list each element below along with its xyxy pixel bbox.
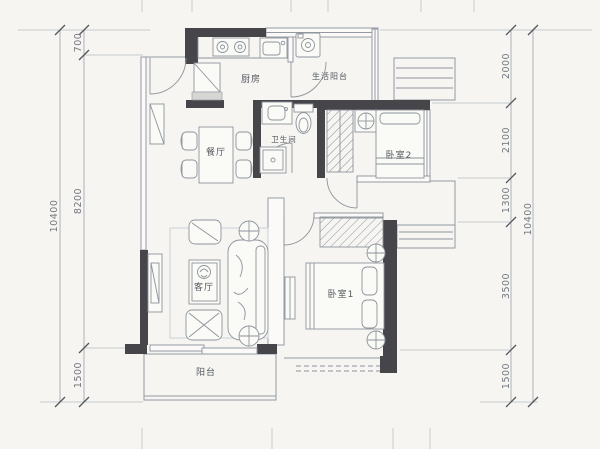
kitchen-sink-icon — [260, 38, 287, 58]
bedroom2-bed-icon — [376, 110, 424, 178]
ac-platform-top — [394, 58, 455, 100]
dim-right-2100: 2100 — [501, 127, 512, 153]
dim-right-3500: 3500 — [501, 273, 512, 299]
living-balcony-area: 生活阳台 — [296, 33, 348, 81]
bedroom2-door — [327, 178, 357, 208]
bathroom-label: 卫生间 — [271, 134, 297, 144]
bedroom1-area: 卧室1 — [285, 217, 385, 349]
dim-right-1300: 1300 — [501, 187, 512, 213]
dining-chair-icon — [236, 160, 252, 178]
dining-chair-icon — [181, 160, 197, 178]
balcony-area: 阳台 — [196, 366, 216, 378]
bottom-extension-ticks — [142, 428, 430, 449]
entry-door-arc — [150, 58, 186, 94]
dining-area: 餐厅 — [150, 104, 252, 183]
living-balcony-label: 生活阳台 — [312, 71, 348, 81]
bedroom1-door — [284, 215, 314, 245]
dim-left-8200: 8200 — [73, 188, 84, 214]
toilet-icon — [294, 104, 313, 134]
living-room-area: 客厅 — [148, 220, 268, 346]
kitchen-label: 厨房 — [241, 73, 261, 85]
kitchen-area: 厨房 — [192, 37, 288, 100]
bedroom1-label: 卧室1 — [328, 288, 355, 300]
floor-plan-canvas: 700 8200 1500 10400 2000 2100 1300 3500 … — [0, 0, 600, 449]
stove-icon — [213, 38, 249, 56]
windows-and-thin-walls — [141, 28, 455, 400]
armchair-icon — [189, 220, 221, 244]
dim-right-total: 10400 — [523, 203, 534, 236]
bedroom2-wardrobe-icon — [327, 110, 353, 172]
left-exterior-wall — [141, 57, 146, 250]
shoe-cabinet-icon — [150, 104, 164, 144]
bathroom-vanity-icon — [262, 102, 292, 124]
side-table-icon — [239, 326, 259, 346]
living-bedroom1-divider — [268, 198, 284, 345]
floor-plan: 700 8200 1500 10400 2000 2100 1300 3500 … — [0, 0, 600, 449]
dresser-icon — [285, 277, 295, 319]
dining-label: 餐厅 — [206, 146, 226, 158]
sofa-icon — [228, 240, 268, 340]
washing-machine-icon — [296, 33, 320, 57]
bedroom2-label: 卧室2 — [386, 149, 413, 161]
side-table-icon — [239, 221, 259, 241]
living-room-label: 客厅 — [194, 281, 214, 293]
bedroom1-door-arc — [284, 215, 314, 245]
corner-table-icon — [355, 110, 377, 132]
top-extension-ticks — [142, 0, 474, 12]
dim-left-total: 10400 — [49, 200, 60, 233]
dim-right-1500: 1500 — [501, 363, 512, 389]
balcony-label: 阳台 — [196, 366, 216, 378]
bedroom2-step-wall — [430, 181, 455, 225]
nightstand-icon — [367, 331, 385, 349]
balcony-sliding-door — [150, 345, 257, 354]
dim-left-700: 700 — [73, 33, 84, 53]
bedroom2-area: 卧室2 — [327, 110, 424, 178]
entry-door — [150, 58, 186, 94]
bedroom2-door-arc — [327, 178, 357, 208]
dim-left-1500: 1500 — [73, 362, 84, 388]
kitchen-balcony-divider — [288, 37, 293, 62]
nightstand-icon — [367, 244, 385, 262]
dim-right-2000: 2000 — [501, 53, 512, 79]
dining-chair-icon — [181, 132, 197, 150]
armchair-icon — [186, 310, 222, 340]
kitchen-counter — [192, 92, 222, 100]
coffee-table-icon — [189, 260, 220, 304]
ac-platform-right — [397, 225, 455, 248]
dining-chair-icon — [236, 132, 252, 150]
shower-icon — [260, 147, 286, 173]
fridge-icon — [194, 63, 220, 92]
tv-cabinet-icon — [148, 254, 162, 312]
dimension-right: 2000 2100 1300 3500 1500 10400 — [380, 25, 592, 407]
bedroom1-wardrobe-icon — [320, 217, 383, 247]
bathroom-area: 卫生间 — [260, 102, 313, 173]
